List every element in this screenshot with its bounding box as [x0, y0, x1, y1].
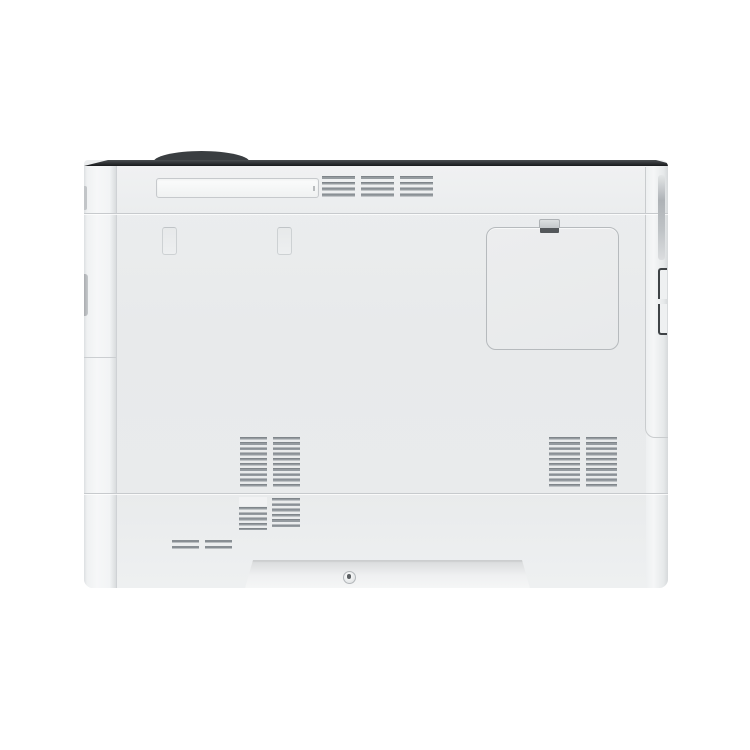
side-vent-right-column — [549, 437, 580, 488]
lower-vent-column — [239, 507, 267, 530]
access-door — [486, 227, 619, 350]
small-vent-group — [205, 540, 232, 550]
top-vent-column — [400, 176, 433, 197]
top-vent-column — [361, 176, 394, 197]
left-edge-detail — [84, 186, 87, 210]
printer — [84, 151, 668, 588]
door-latch — [539, 219, 560, 234]
edge-latch-lower-segment — [658, 304, 667, 335]
upper-panel-seam — [84, 213, 668, 214]
left-edge-face — [84, 166, 117, 588]
edge-latch-upper-segment — [658, 268, 667, 299]
mounting-slot — [277, 227, 292, 255]
small-vent-group — [172, 540, 199, 550]
edge-grip-strip — [658, 175, 665, 260]
left-edge-seam — [84, 357, 116, 358]
top-vent-column — [322, 176, 355, 197]
product-photo-canvas — [0, 0, 750, 750]
side-vent-left-column — [240, 437, 267, 488]
base-screw — [343, 571, 356, 584]
mounting-slot — [162, 227, 177, 255]
edge-latch-bracket — [658, 268, 667, 335]
top-edge-strip — [84, 160, 668, 166]
lower-vent-patch — [239, 497, 267, 506]
door-latch-clip — [540, 228, 559, 233]
lower-vent-column — [272, 498, 300, 530]
side-vent-left-column — [273, 437, 300, 488]
side-vent-right-column — [586, 437, 617, 488]
door-latch-cap — [539, 219, 560, 228]
left-edge-grip — [84, 274, 88, 316]
lower-panel-seam — [84, 493, 668, 494]
printer-side-panel — [84, 160, 668, 588]
carry-handle-slot — [156, 178, 319, 198]
base-recess — [245, 560, 530, 588]
